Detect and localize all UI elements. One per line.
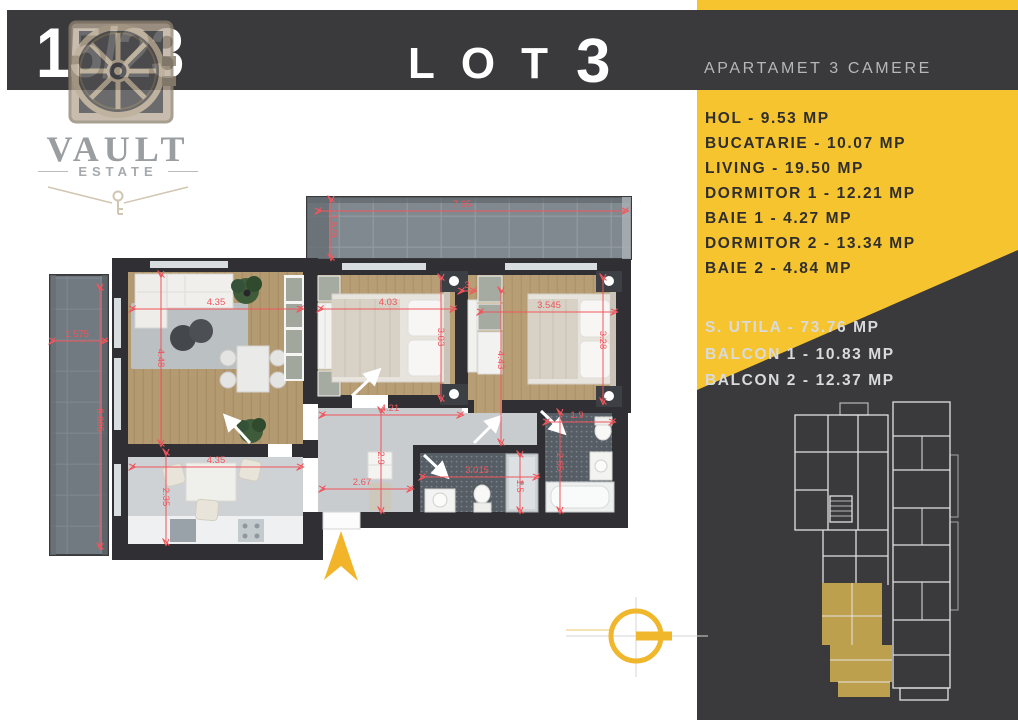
hallway-furniture <box>368 452 392 511</box>
dimension-label: 4.03 <box>379 297 398 308</box>
dimension-label: 3.03 <box>435 328 446 347</box>
total-row: BALCON 1 - 10.83 MP <box>705 342 895 369</box>
kitchen-furniture <box>128 418 303 544</box>
total-row: BALCON 2 - 12.37 MP <box>705 368 895 395</box>
dimension-label: 4.48 <box>155 349 166 368</box>
bathroom-2-floor <box>545 412 612 512</box>
hall-mat <box>369 483 391 511</box>
toilet <box>595 422 611 440</box>
dimension-label: 2.35 <box>160 488 171 507</box>
hall-cabinet <box>368 452 392 479</box>
windows <box>114 261 597 516</box>
logo-tagline: ESTATE <box>0 164 236 179</box>
surface-totals-list: S. UTILA - 73.76 MP BALCON 1 - 10.83 MP … <box>705 315 895 395</box>
bedroom-2-floor <box>468 275 615 400</box>
dimension-label: 7.65 <box>453 199 472 210</box>
sink <box>590 452 612 480</box>
compass-icon <box>566 597 708 677</box>
bed <box>528 292 616 386</box>
dimension-label: 3 <box>464 280 469 291</box>
dimension-label: 1.575 <box>65 329 89 340</box>
kitchen-counter <box>128 516 303 544</box>
bathroom-2-fixtures <box>546 417 614 512</box>
shower <box>506 454 538 512</box>
room-row: LIVING - 19.50 MP <box>705 156 916 181</box>
dimension-label: 1.575 <box>328 214 339 238</box>
stove <box>238 519 264 542</box>
nightstand <box>596 271 622 292</box>
tagline-rule-right <box>168 171 198 172</box>
door-arrows <box>229 374 560 473</box>
bed <box>332 292 450 384</box>
room-row: HOL - 9.53 MP <box>705 106 916 131</box>
room-row: BAIE 1 - 4.27 MP <box>705 206 916 231</box>
bedroom-2-furniture <box>468 271 622 407</box>
nightstand <box>440 384 468 405</box>
unit-number: 15/23 <box>36 12 183 93</box>
bedroom-1-floor <box>318 275 455 395</box>
room-row: BAIE 2 - 4.84 MP <box>705 256 916 281</box>
apartment-subtitle: APARTAMET 3 CAMERE <box>704 60 932 78</box>
floor-plan-poster: { "header": { "unit_number": "15/23", "l… <box>0 0 1018 720</box>
key-icon <box>48 187 188 214</box>
kitchen-floor <box>128 457 303 544</box>
bathroom-1-floor <box>420 453 537 512</box>
tagline-text: ESTATE <box>78 164 157 179</box>
total-row: S. UTILA - 73.76 MP <box>705 315 895 342</box>
dining-table <box>220 346 286 392</box>
plant <box>231 276 262 304</box>
entrance-door-opening <box>323 512 360 529</box>
dimension-label: 1.5 <box>514 479 525 492</box>
bathroom-1-fixtures <box>425 454 538 512</box>
shelf-unit <box>284 275 304 381</box>
dimension-label: 2.9 <box>375 451 386 464</box>
dimension-label: 4.43 <box>495 351 506 370</box>
dimension-label: 4.21 <box>381 403 400 414</box>
room-row: BUCATARIE - 10.07 MP <box>705 131 916 156</box>
coffee-table <box>189 319 213 343</box>
dimension-label: 3.545 <box>537 300 561 311</box>
living-room-furniture <box>131 274 304 392</box>
hallway-floor <box>318 408 462 450</box>
dimension-label: 3.015 <box>465 465 489 476</box>
lot-label: LOT <box>408 38 574 90</box>
tagline-rule-left <box>38 171 68 172</box>
dimension-label: 2.65 <box>554 453 565 472</box>
dimension-label: 3.28 <box>597 331 608 350</box>
nightstand <box>596 386 622 407</box>
coffee-table <box>170 325 196 351</box>
dimension-label: 4.35 <box>207 297 226 308</box>
balcony-2-top <box>307 197 631 259</box>
living-floor <box>128 272 303 444</box>
lot-title: LOT 3 <box>408 34 610 90</box>
bathtub <box>546 482 614 512</box>
room-area-list: HOL - 9.53 MP BUCATARIE - 10.07 MP LIVIN… <box>705 106 916 281</box>
sink-vanity <box>425 489 455 512</box>
bedroom-1-furniture <box>318 271 468 405</box>
rug <box>131 303 248 369</box>
plant <box>237 418 266 443</box>
dimension-label: 2.67 <box>353 477 372 488</box>
nightstand <box>440 271 468 292</box>
dimension-label: 4.35 <box>207 455 226 466</box>
sink <box>170 519 196 542</box>
balcony-1-left <box>50 275 108 555</box>
room-row: DORMITOR 1 - 12.21 MP <box>705 181 916 206</box>
sofa <box>135 274 233 328</box>
dimension-labels: 7.651.5751.5756.8054.354.484.352.352.672… <box>65 199 608 506</box>
dimension-lines <box>52 199 625 546</box>
entrance-arrow-icon <box>324 531 358 581</box>
dimension-label: 1.9 <box>570 410 583 421</box>
lot-number: 3 <box>576 34 610 90</box>
dimension-label: 6.805 <box>94 408 105 432</box>
toilet <box>474 485 490 503</box>
room-row: DORMITOR 2 - 13.34 MP <box>705 231 916 256</box>
walls <box>112 258 631 560</box>
kitchen-table <box>186 463 236 501</box>
room-floors <box>128 272 615 544</box>
